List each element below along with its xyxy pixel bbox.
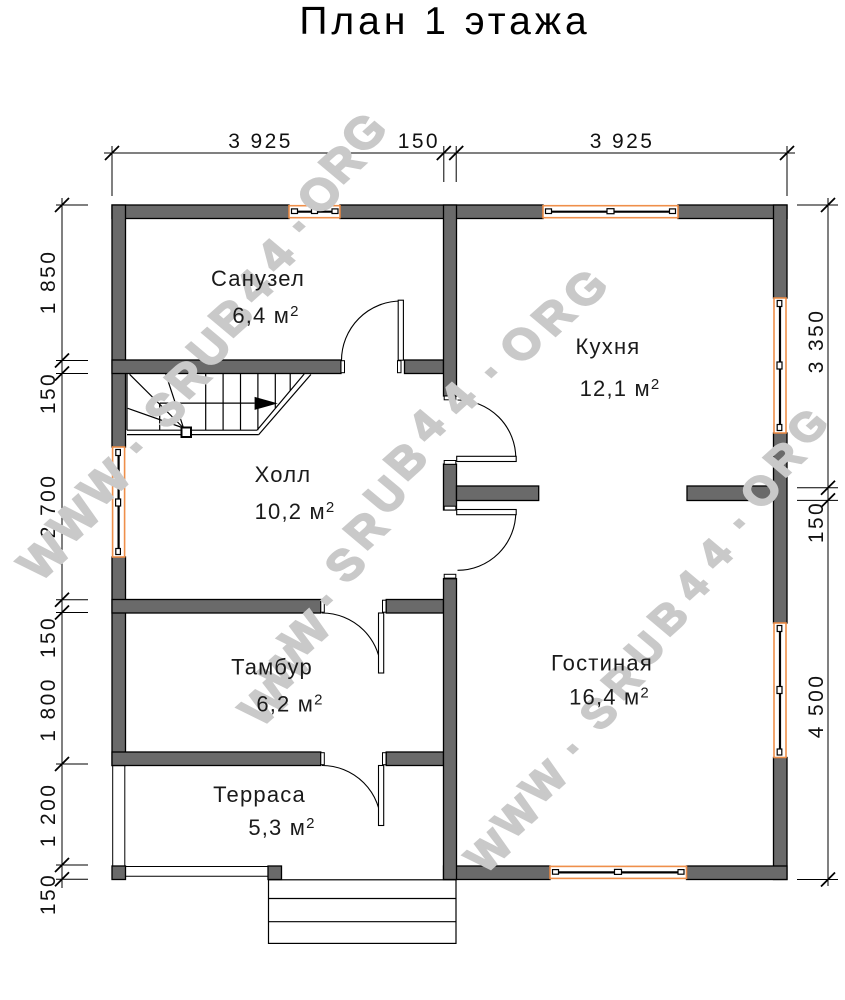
svg-text:6,4 м2: 6,4 м2 [232,303,299,328]
svg-text:150: 150 [398,130,440,153]
svg-text:3 350: 3 350 [805,309,828,374]
svg-text:Тамбур: Тамбур [231,655,313,680]
svg-text:150: 150 [37,873,60,915]
svg-text:1 800: 1 800 [37,677,60,742]
svg-text:10,2 м2: 10,2 м2 [255,499,336,524]
svg-text:3 925: 3 925 [590,130,655,153]
svg-text:.: . [708,497,754,536]
svg-text:План 1 этажа: План 1 этажа [299,0,590,43]
svg-text:16,4 м2: 16,4 м2 [569,685,650,710]
svg-text:Кухня: Кухня [576,334,641,359]
svg-text:5,3 м2: 5,3 м2 [248,815,315,840]
svg-text:Гостиная: Гостиная [551,651,653,676]
svg-text:Терраса: Терраса [213,782,306,807]
svg-text:4: 4 [428,373,487,424]
svg-text:6,2 м2: 6,2 м2 [256,692,323,717]
svg-text:3 925: 3 925 [228,130,293,153]
svg-text:150: 150 [37,616,60,658]
svg-text:150: 150 [805,501,828,543]
svg-text:.: . [542,722,588,761]
svg-text:Холл: Холл [255,462,312,487]
svg-text:.: . [457,343,506,385]
svg-text:1 200: 1 200 [37,783,60,848]
svg-text:4 500: 4 500 [805,674,828,739]
svg-text:Санузел: Санузел [211,266,305,291]
svg-text:12,1 м2: 12,1 м2 [580,376,661,401]
svg-text:150: 150 [37,372,60,414]
svg-text:1 850: 1 850 [37,250,60,315]
svg-text:4: 4 [688,531,743,578]
